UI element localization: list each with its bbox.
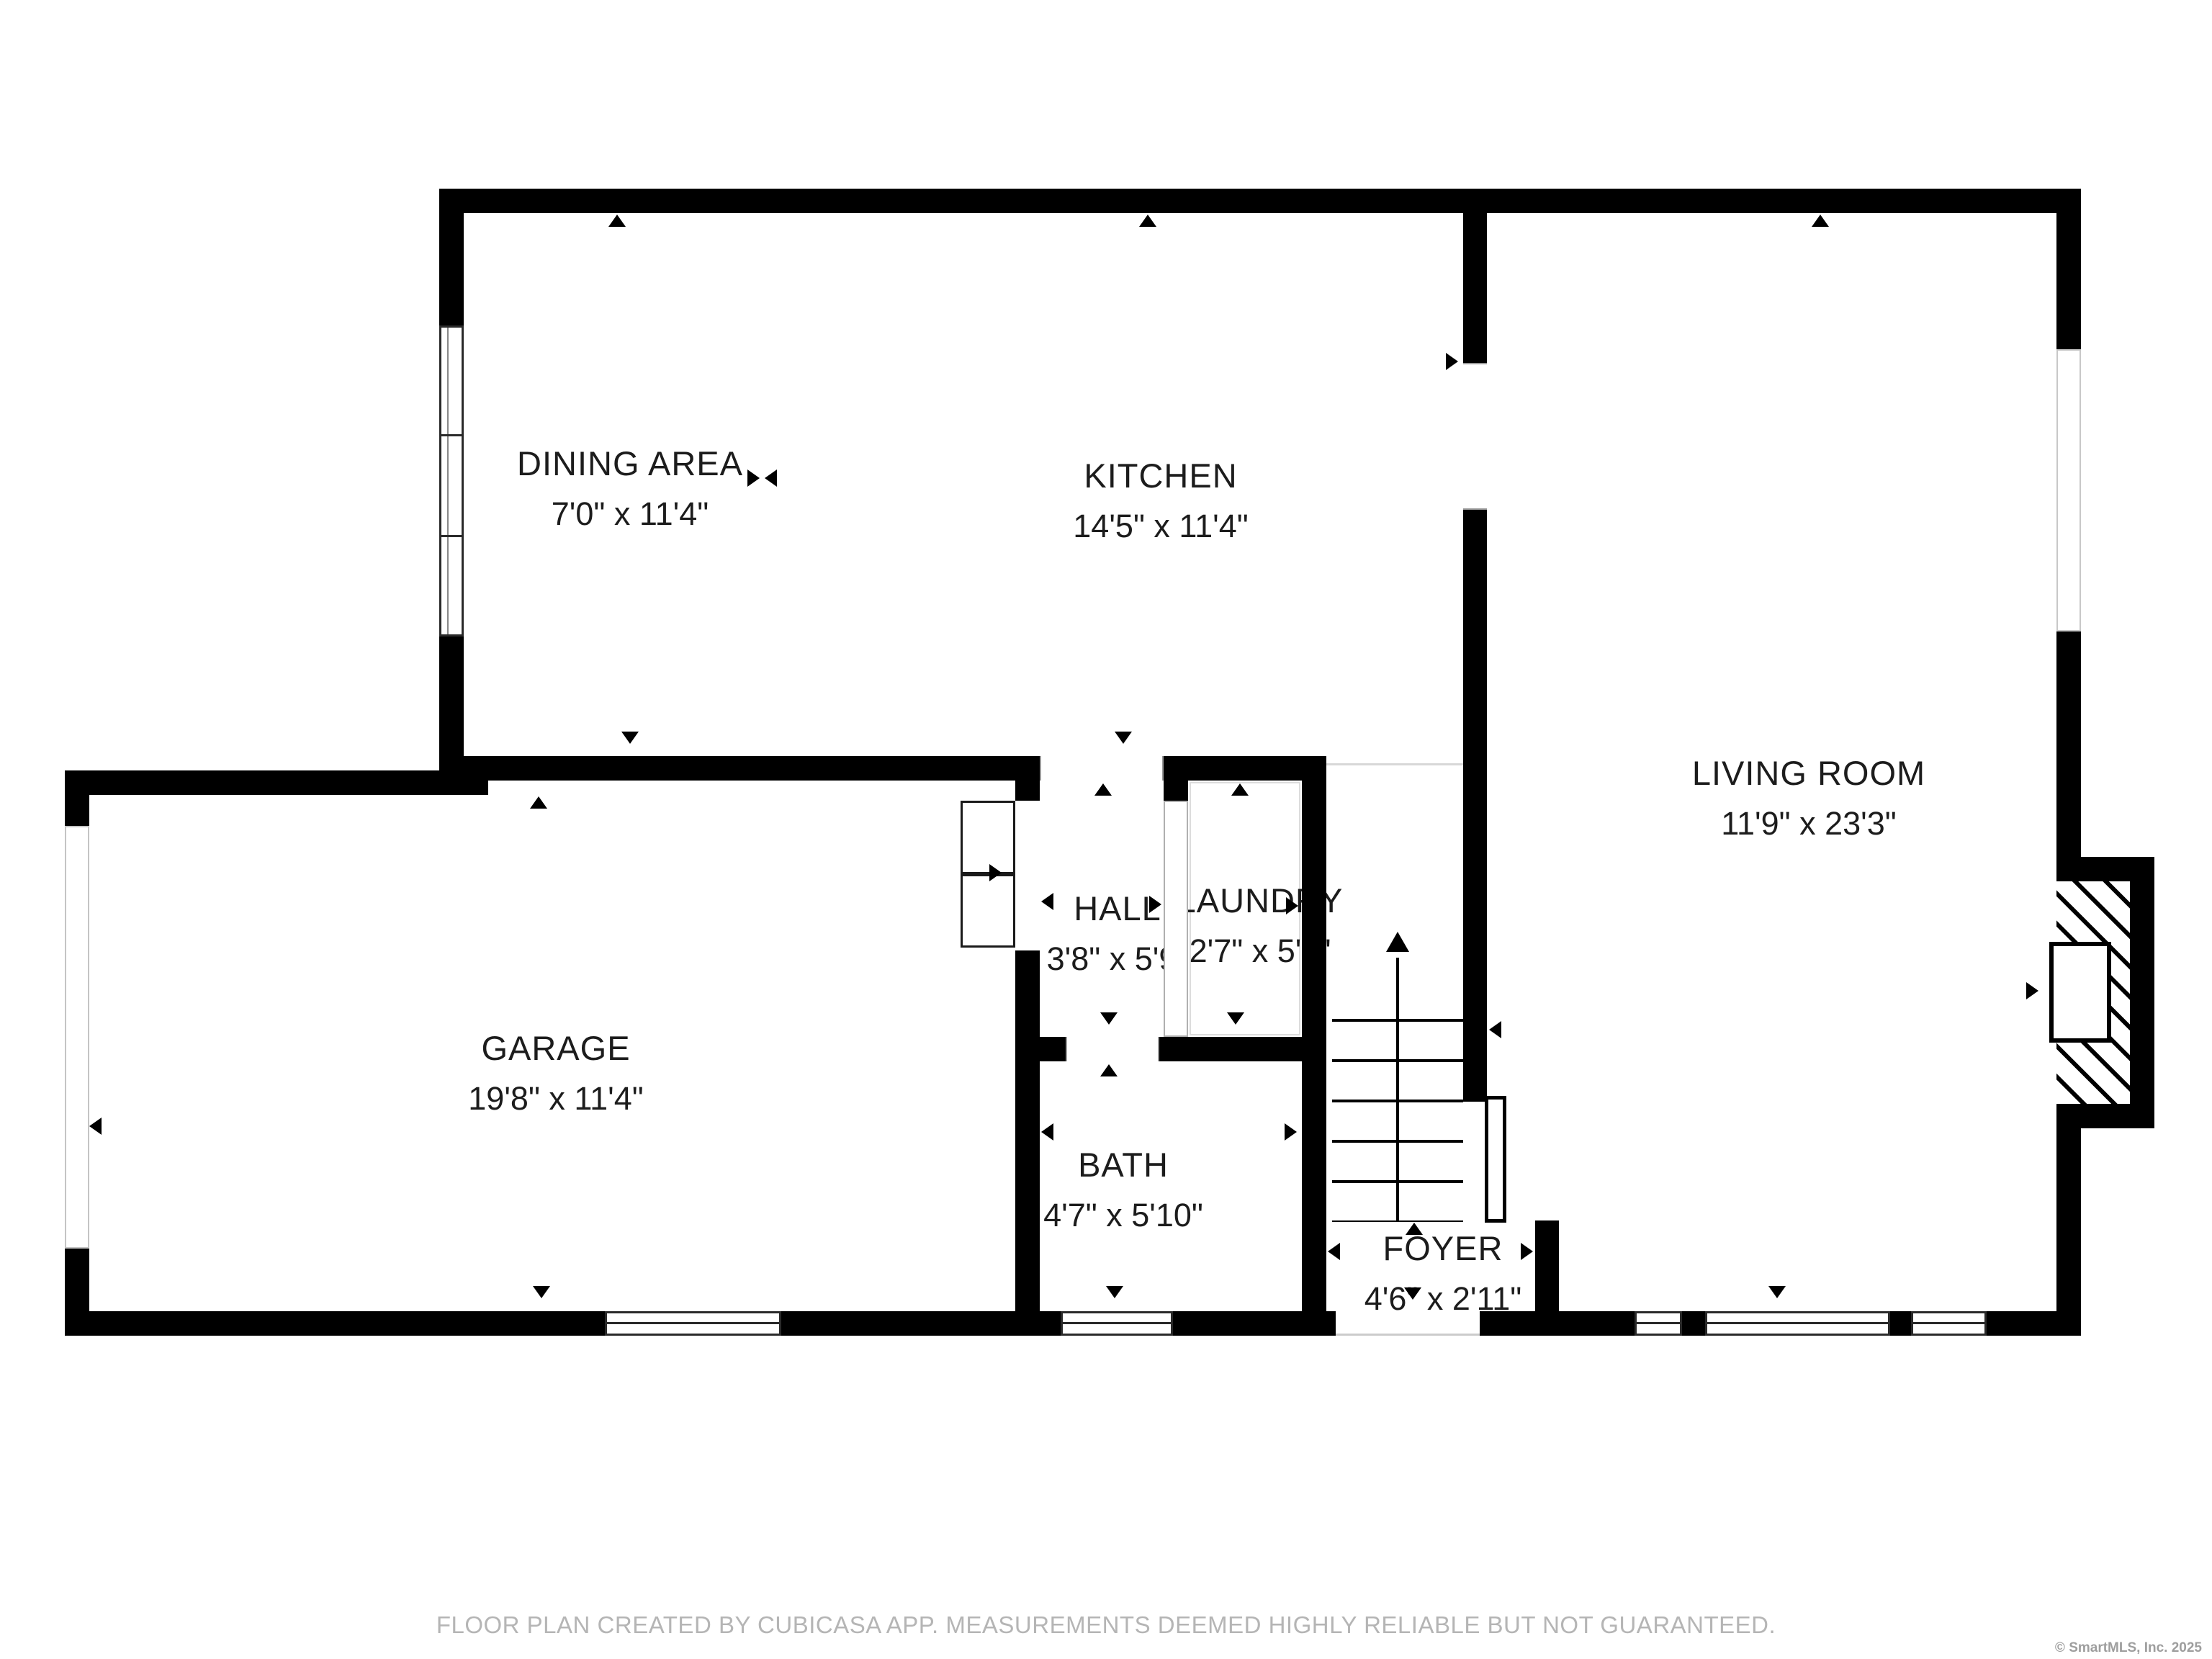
room-label-garage: GARAGE 19'8" x 11'4"	[468, 1023, 643, 1123]
dimension-arrow-icon	[1231, 783, 1249, 796]
dimension-arrow-icon	[621, 732, 639, 744]
stairwell-opening-line	[1326, 763, 1463, 765]
dimension-arrow-icon	[1115, 732, 1132, 744]
wall	[1159, 1037, 1188, 1061]
dimension-arrow-icon	[989, 864, 1002, 881]
wall	[1164, 756, 1188, 801]
wall	[1682, 1311, 1705, 1336]
room-name: BATH	[1043, 1140, 1203, 1191]
dimension-arrow-icon	[2026, 982, 2038, 999]
dimension-arrow-icon	[1446, 353, 1458, 370]
floor-plan: DINING AREA 7'0" x 11'4" KITCHEN 14'5" x…	[0, 0, 2212, 1659]
front-door-opening	[1336, 1311, 1480, 1336]
wall	[1535, 1220, 1559, 1336]
window-frame-line	[441, 535, 462, 537]
wall	[1015, 756, 1040, 801]
wall	[2056, 631, 2081, 857]
fireplace-firebox-icon	[2049, 942, 2111, 1043]
dimension-arrow-icon	[533, 1286, 550, 1298]
dimension-arrow-icon	[1041, 893, 1053, 910]
room-dimensions: 7'0" x 11'4"	[517, 490, 743, 539]
dimension-arrow-icon	[1100, 1012, 1118, 1025]
room-label-dining: DINING AREA 7'0" x 11'4"	[517, 439, 743, 538]
wall	[1015, 950, 1040, 1336]
window-frame-line	[1913, 1322, 1984, 1324]
dimension-arrow-icon	[1404, 1287, 1421, 1300]
dimension-arrow-icon	[1328, 1243, 1340, 1260]
stairs-center-line	[1396, 958, 1399, 1221]
dimension-arrow-icon	[608, 215, 626, 227]
wall	[65, 770, 89, 826]
dimension-arrow-icon	[1286, 897, 1298, 914]
wall	[439, 189, 2081, 213]
fireplace-wall	[2130, 881, 2154, 1104]
window	[1911, 1311, 1987, 1336]
dimension-arrow-icon	[1489, 1021, 1501, 1038]
room-dimensions: 4'7" x 5'10"	[1043, 1191, 1203, 1240]
wall	[65, 770, 464, 795]
window-frame-line	[441, 434, 462, 436]
wall	[439, 637, 464, 770]
wall	[2056, 189, 2081, 349]
fireplace-wall	[2056, 857, 2154, 881]
dimension-arrow-icon	[89, 1118, 102, 1135]
wall	[1463, 213, 1487, 363]
dimension-arrow-icon	[1285, 1123, 1297, 1141]
dimension-arrow-icon	[1041, 1123, 1053, 1141]
dimension-arrow-icon	[1406, 1223, 1423, 1235]
window	[2056, 349, 2081, 631]
laundry-door-opening	[1164, 801, 1188, 1037]
wall	[1463, 781, 1487, 1102]
window-frame-line	[1063, 1322, 1171, 1324]
window	[439, 325, 464, 637]
window-frame-line	[1707, 1322, 1888, 1324]
step-icon	[961, 801, 1015, 874]
cased-opening	[1463, 363, 1487, 510]
dimension-arrow-icon	[1768, 1286, 1786, 1298]
dimension-arrow-icon	[1149, 896, 1161, 913]
room-label-foyer: FOYER 4'6" x 2'11"	[1364, 1223, 1521, 1323]
dimension-arrow-icon	[1106, 1286, 1123, 1298]
dimension-arrow-icon	[765, 469, 777, 487]
room-name: KITCHEN	[1073, 451, 1248, 502]
front-door-leaf-icon	[1485, 1096, 1506, 1223]
wall	[65, 1311, 605, 1336]
room-label-living: LIVING ROOM 11'9" x 23'3"	[1692, 748, 1925, 848]
window-frame-line	[1637, 1322, 1680, 1324]
room-label-kitchen: KITCHEN 14'5" x 11'4"	[1073, 451, 1248, 550]
cased-opening	[1040, 756, 1164, 781]
room-name: LIVING ROOM	[1692, 748, 1925, 799]
room-name: GARAGE	[468, 1023, 643, 1074]
dimension-arrow-icon	[1094, 783, 1112, 796]
room-name: FOYER	[1364, 1223, 1521, 1274]
room-dimensions: 14'5" x 11'4"	[1073, 502, 1248, 551]
wall	[439, 189, 464, 328]
room-label-bath: BATH 4'7" x 5'10"	[1043, 1140, 1203, 1239]
dimension-arrow-icon	[1521, 1243, 1533, 1260]
dimension-arrow-icon	[1227, 1012, 1244, 1025]
fireplace-wall	[2056, 1104, 2154, 1128]
window	[1061, 1311, 1173, 1336]
room-dimensions: 19'8" x 11'4"	[468, 1074, 643, 1123]
bath-door-opening	[1066, 1037, 1159, 1061]
wall	[2056, 1128, 2081, 1336]
disclaimer-text: FLOOR PLAN CREATED BY CUBICASA APP. MEAS…	[0, 1611, 2212, 1639]
dimension-arrow-icon	[1139, 215, 1156, 227]
dimension-arrow-icon	[1812, 215, 1829, 227]
dimension-arrow-icon	[747, 469, 760, 487]
wall	[464, 756, 1040, 781]
window	[1705, 1311, 1890, 1336]
dimension-arrow-icon	[1100, 1064, 1118, 1076]
wall	[1302, 756, 1326, 1336]
window-frame-line	[607, 1322, 779, 1324]
step-icon	[961, 874, 1015, 948]
copyright-text: © SmartMLS, Inc. 2025	[2055, 1640, 2202, 1656]
window	[1635, 1311, 1682, 1336]
wall	[1040, 1037, 1066, 1061]
garage-door-opening	[65, 826, 89, 1249]
window-frame-line	[447, 328, 449, 634]
dimension-arrow-icon	[530, 796, 547, 809]
room-name: DINING AREA	[517, 439, 743, 490]
window	[605, 1311, 781, 1336]
room-dimensions: 11'9" x 23'3"	[1692, 799, 1925, 848]
wall	[1463, 510, 1487, 781]
stairs-up-arrow-icon	[1386, 932, 1409, 952]
wall	[1890, 1311, 1911, 1336]
